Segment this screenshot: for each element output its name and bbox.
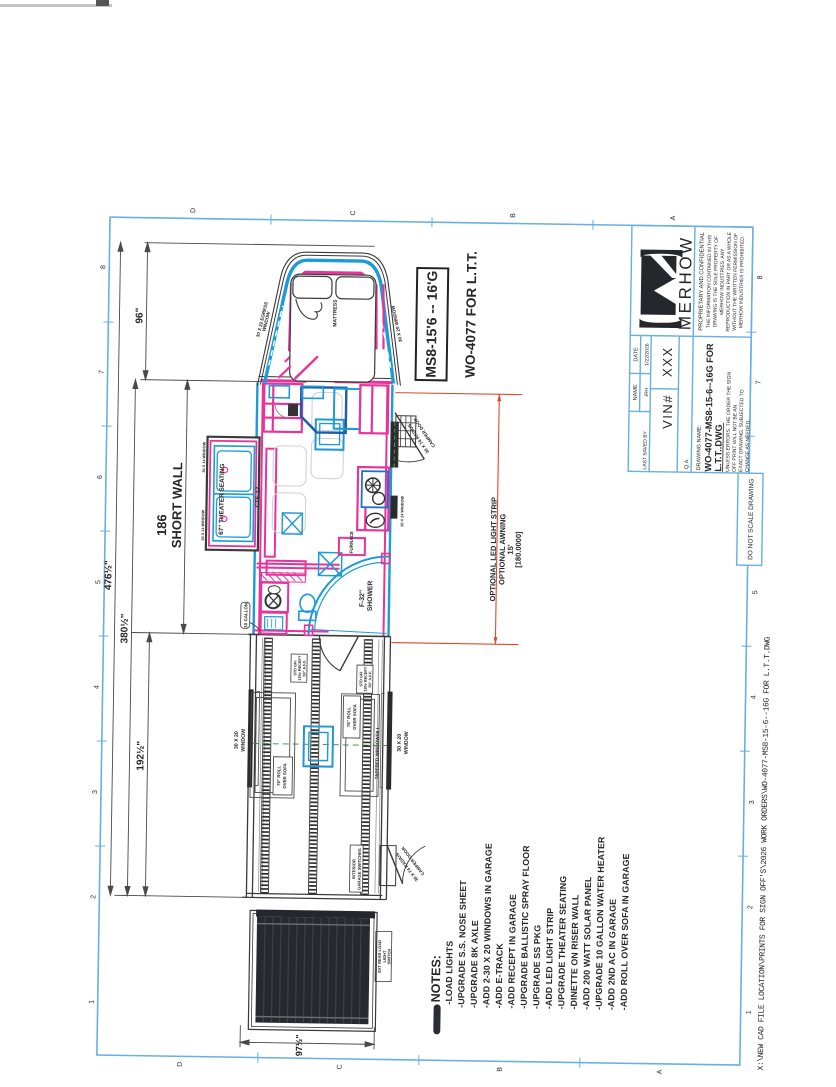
svg-text:CTS-17: CTS-17	[255, 486, 261, 507]
svg-text:-ADD RECEPT IN GARAGE: -ADD RECEPT IN GARAGE	[506, 894, 518, 1009]
svg-text:INTERIOR: INTERIOR	[351, 859, 356, 879]
svg-text:MATTRESS: MATTRESS	[332, 299, 338, 327]
svg-text:A: A	[670, 215, 677, 220]
svg-text:-ADD 2-30 X 20 WINDOWS IN GARA: -ADD 2-30 X 20 WINDOWS IN GARAGE	[481, 843, 494, 1008]
svg-text:20 X 24 WINDOW: 20 X 24 WINDOW	[400, 496, 404, 527]
svg-text:WINDOW: WINDOW	[241, 729, 247, 752]
svg-text:CHANGE AS NEEDED.: CHANGE AS NEEDED.	[745, 419, 752, 472]
svg-text:3: 3	[749, 800, 756, 804]
svg-text:10 GALLON: 10 GALLON	[243, 603, 248, 628]
svg-text:NAME: NAME	[633, 384, 639, 400]
svg-text:192½": 192½"	[135, 741, 146, 771]
svg-text:GARAGE SWITCHES: GARAGE SWITCHES	[356, 848, 362, 890]
svg-text:C: C	[350, 210, 357, 215]
svg-text:X:\NEW CAD FILE LOCATION\PRINT: X:\NEW CAD FILE LOCATION\PRINTS FOR SIGN…	[757, 636, 773, 1070]
svg-text:OVER SOFA: OVER SOFA	[282, 762, 287, 789]
svg-text:1: 1	[89, 1000, 96, 1004]
svg-text:[180.0000]: [180.0000]	[514, 531, 524, 568]
svg-text:-ADD ROLL OVER SOFA IN GARAGE: -ADD ROLL OVER SOFA IN GARAGE	[619, 853, 631, 1010]
svg-text:WITHOUT THE WRITTEN PERMISSION: WITHOUT THE WRITTEN PERMISSION OF	[732, 233, 740, 331]
svg-text:VIN#: VIN#	[660, 394, 676, 429]
svg-text:2: 2	[747, 905, 754, 909]
svg-text:-DINETTE ON RISER WALL: -DINETTE ON RISER WALL	[569, 894, 581, 1010]
svg-text:A: A	[657, 1069, 664, 1074]
svg-text:NOTES:: NOTES:	[429, 955, 444, 1002]
svg-text:380½": 380½"	[119, 613, 130, 643]
svg-text:-UPGRADE SS PKG: -UPGRADE SS PKG	[531, 925, 542, 1009]
svg-text:50" A.F.F.: 50" A.F.F.	[302, 660, 306, 677]
svg-text:OVER SOFA: OVER SOFA	[352, 703, 357, 730]
svg-text:1: 1	[746, 1010, 753, 1014]
svg-text:DO NOT SCALE DRAWING: DO NOT SCALE DRAWING	[747, 479, 755, 560]
svg-text:B: B	[497, 1067, 504, 1072]
svg-text:30 X 20: 30 X 20	[397, 734, 403, 752]
svg-text:76" ROLL: 76" ROLL	[276, 765, 281, 786]
svg-text:1/22/2026: 1/22/2026	[644, 343, 650, 366]
svg-text:186: 186	[154, 514, 169, 536]
svg-text:D: D	[190, 208, 197, 213]
svg-text:XXX: XXX	[660, 346, 675, 377]
svg-text:-UPGRADE 8K AXLE: -UPGRADE 8K AXLE	[469, 920, 480, 1008]
svg-text:PROPRIETARY AND CONFIDENTIAL: PROPRIETARY AND CONFIDENTIAL	[698, 231, 706, 330]
svg-text:FURNACE: FURNACE	[349, 531, 354, 554]
svg-text:SHORT WALL: SHORT WALL	[169, 462, 185, 548]
svg-text:MS8-15'6 -- 16'G: MS8-15'6 -- 16'G	[423, 270, 441, 377]
svg-text:2: 2	[90, 895, 97, 899]
svg-text:SHOWER: SHOWER	[367, 581, 374, 612]
svg-text:30 X 20 WINDOW: 30 X 20 WINDOW	[390, 304, 403, 342]
svg-text:4: 4	[751, 695, 758, 699]
svg-text:5: 5	[752, 590, 759, 594]
svg-text:WINDOW: WINDOW	[404, 731, 410, 754]
svg-text:7: 7	[755, 380, 762, 384]
svg-text:WO-4077 FOR L.T.T.: WO-4077 FOR L.T.T.	[463, 251, 480, 378]
svg-text:67" THEATER SEATING: 67" THEATER SEATING	[218, 464, 226, 535]
svg-text:JRH: JRH	[644, 388, 649, 397]
svg-text:MERHOW INDUSTRIES. ANY: MERHOW INDUSTRIES. ANY	[719, 248, 726, 315]
svg-text:DRAWING IS THE SOLE PROPERTY O: DRAWING IS THE SOLE PROPERTY OF	[712, 236, 719, 327]
svg-text:-ADD E-TRACK: -ADD E-TRACK	[494, 942, 505, 1008]
svg-text:L.T.T..DWG: L.T.T..DWG	[713, 424, 724, 472]
svg-text:-ADD 200 WATT SOLAR PANEL: -ADD 200 WATT SOLAR PANEL	[581, 876, 593, 1010]
svg-text:97½": 97½"	[294, 1034, 304, 1056]
svg-text:8: 8	[100, 265, 107, 269]
svg-text:5: 5	[95, 580, 102, 584]
svg-text:6: 6	[97, 475, 104, 479]
svg-text:D: D	[177, 1062, 184, 1067]
svg-text:3: 3	[92, 790, 99, 794]
svg-text:76" ROLL: 76" ROLL	[346, 707, 351, 728]
svg-text:-UPGRADE S.S. NOSE SHEET: -UPGRADE S.S. NOSE SHEET	[456, 880, 468, 1008]
svg-text:-ADD LED LIGHT STRIP: -ADD LED LIGHT STRIP	[544, 908, 556, 1009]
svg-text:-UPGRADE 10 GALLON WATER HEATE: -UPGRADE 10 GALLON WATER HEATER	[594, 836, 607, 1010]
svg-text:C: C	[337, 1064, 344, 1069]
svg-text:DATE: DATE	[633, 347, 639, 362]
svg-text:F-32": F-32"	[359, 590, 366, 607]
svg-text:-UPGRADE BALLISTIC SPRAY FLOOR: -UPGRADE BALLISTIC SPRAY FLOOR	[519, 845, 532, 1009]
svg-text:B: B	[510, 213, 517, 218]
svg-text:DRAWING NAME:: DRAWING NAME:	[696, 425, 703, 471]
svg-text:LAST SAVED BY: LAST SAVED BY	[642, 430, 649, 469]
svg-text:-UPGRADE THEATER SEATING: -UPGRADE THEATER SEATING	[556, 876, 568, 1010]
svg-text:30 X 20: 30 X 20	[234, 731, 240, 749]
svg-text:476½": 476½"	[103, 560, 114, 590]
svg-text:SWITCH: SWITCH	[386, 949, 391, 965]
svg-text:REPRODUCTION IN PART OR AS A W: REPRODUCTION IN PART OR AS A WHOLE	[725, 231, 733, 331]
svg-text:4: 4	[94, 685, 101, 689]
svg-text:MERHOW INDUSTRIES IS PROHIBITE: MERHOW INDUSTRIES IS PROHIBITED.	[738, 236, 745, 328]
svg-text:-LOAD LIGHTS: -LOAD LIGHTS	[444, 941, 455, 1005]
svg-text:50" A.F.F.: 50" A.F.F.	[368, 671, 372, 688]
svg-text:30 X 14 WINDOW: 30 X 14 WINDOW	[202, 441, 206, 472]
svg-text:MERHOW: MERHOW	[675, 235, 695, 330]
svg-text:7: 7	[99, 370, 106, 374]
svg-text:THE INFORMATION CONTAINED IN T: THE INFORMATION CONTAINED IN THIS	[706, 234, 713, 328]
svg-text:-ADD 2ND AC IN GARAGE: -ADD 2ND AC IN GARAGE	[606, 899, 618, 1010]
svg-text:30 X 14 WINDOW: 30 X 14 WINDOW	[201, 509, 205, 540]
svg-text:96": 96"	[134, 307, 145, 323]
svg-text:8: 8	[757, 275, 764, 279]
svg-text:Q.A.: Q.A.	[684, 458, 690, 470]
